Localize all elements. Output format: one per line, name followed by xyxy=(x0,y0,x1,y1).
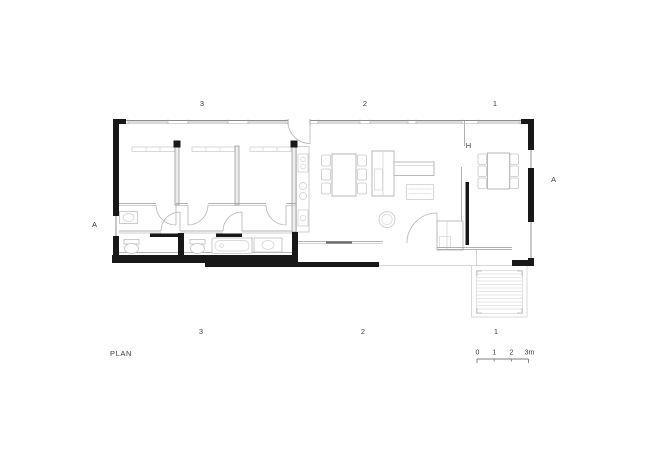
marker-bottom-3: 3 xyxy=(199,327,203,336)
bathtub xyxy=(212,238,252,254)
bottom-right-corner xyxy=(512,260,534,266)
scale-label-2: 2 xyxy=(509,350,513,357)
vanity-sink xyxy=(254,238,282,252)
bedroom-doors xyxy=(156,205,286,225)
section-marker-a-right: A xyxy=(551,175,556,184)
right-wall-middle xyxy=(528,168,534,222)
south-wall-left-block xyxy=(112,255,298,263)
column-2 xyxy=(291,141,298,148)
right-wall-upper xyxy=(528,119,534,150)
column-1 xyxy=(174,141,181,148)
scale-label-0: 0 xyxy=(476,350,480,357)
dining-table-1 xyxy=(332,154,356,196)
deck-inner-frame xyxy=(477,271,523,314)
entry-closet xyxy=(437,221,463,250)
marker-top-1: 1 xyxy=(493,99,497,108)
toilet-2 xyxy=(190,240,205,254)
partition-wall-2 xyxy=(235,146,239,205)
dining-set-2 xyxy=(478,153,519,189)
partition-wall-1 xyxy=(175,146,179,205)
laundry-sink xyxy=(120,212,138,224)
wardrobe-lines xyxy=(132,147,291,152)
bath-doors xyxy=(161,212,242,231)
hall-label: H xyxy=(466,141,471,150)
bath-counter-wall-1 xyxy=(150,234,180,238)
partition-wall-3 xyxy=(292,146,296,232)
scale-bar-line xyxy=(477,359,529,363)
dining-set-1 xyxy=(322,154,367,196)
marker-bottom-1: 1 xyxy=(494,327,498,336)
section-marker-a-left: A xyxy=(92,220,97,229)
living-dining xyxy=(288,121,519,250)
kitchen-island xyxy=(372,151,394,196)
bath-counter-wall-2 xyxy=(216,234,242,238)
marker-top-2: 2 xyxy=(363,99,367,108)
scale-label-3m: 3m xyxy=(525,350,535,357)
terrace-door xyxy=(407,213,437,243)
bench xyxy=(394,162,434,176)
section-markers: 3 2 1 3 2 1 A A H xyxy=(92,99,556,336)
floor-plan-drawing: 3 2 1 3 2 1 A A H PLAN 0 1 2 3m xyxy=(0,0,650,459)
marker-top-3: 3 xyxy=(200,99,204,108)
deck xyxy=(472,266,528,318)
bedrooms xyxy=(119,146,296,232)
dining-table-2 xyxy=(488,153,510,189)
marker-bottom-2: 2 xyxy=(361,327,365,336)
left-wall-upper xyxy=(113,119,119,216)
scale-bar: 0 1 2 3m xyxy=(476,350,535,364)
bathroom-block xyxy=(119,212,292,258)
toilet-1 xyxy=(124,240,139,254)
kitchen xyxy=(297,147,310,233)
plan-caption: PLAN xyxy=(110,349,132,358)
round-chair xyxy=(379,212,395,228)
coffee-table xyxy=(407,185,434,200)
scale-label-1: 1 xyxy=(492,350,496,357)
entry-door xyxy=(288,122,310,144)
media-wall xyxy=(466,182,470,245)
top-left-corner xyxy=(113,119,126,124)
floor-plan-page: 3 2 1 3 2 1 A A H PLAN 0 1 2 3m xyxy=(0,0,650,459)
deck-boards xyxy=(477,274,522,309)
entry-jambs xyxy=(288,119,310,125)
bath-east-wall xyxy=(292,232,298,263)
